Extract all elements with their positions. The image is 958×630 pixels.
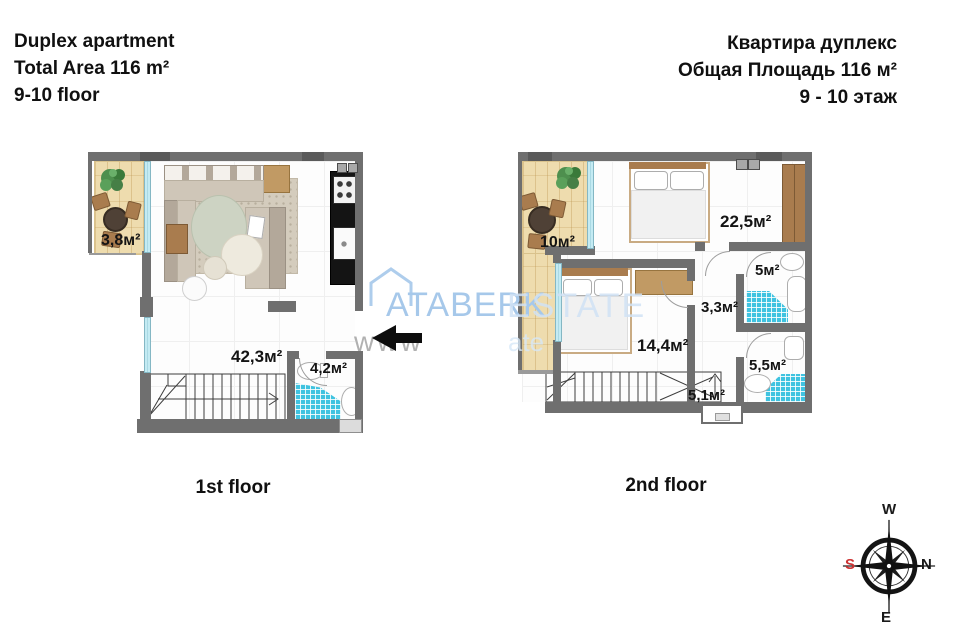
wall bbox=[736, 323, 812, 332]
compass-south-label: S bbox=[845, 556, 855, 573]
corner-table bbox=[262, 165, 290, 193]
wall-cabinet bbox=[348, 163, 358, 173]
wall bbox=[140, 152, 170, 161]
bathtub bbox=[787, 276, 807, 312]
balcony-railing bbox=[518, 370, 555, 374]
staircase bbox=[146, 372, 288, 424]
hall-area-label: 3,3м² bbox=[701, 299, 738, 316]
bed-headboard bbox=[558, 268, 628, 276]
title-ru: Квартира дуплекс Общая Площадь 116 м² 9 … bbox=[678, 30, 897, 111]
entrance-arrow-icon bbox=[372, 324, 422, 352]
bathroom-sink bbox=[780, 253, 804, 271]
wall bbox=[736, 357, 744, 402]
wall bbox=[137, 419, 363, 433]
balcony-railing bbox=[89, 253, 136, 255]
compass-north-label: N bbox=[921, 556, 932, 573]
stairs-area-label: 5,1м² bbox=[688, 387, 725, 404]
window bbox=[144, 161, 151, 253]
compass-west-label: W bbox=[882, 501, 896, 518]
title-ru-line1: Квартира дуплекс bbox=[678, 30, 897, 57]
floor2-caption: 2nd floor bbox=[518, 475, 814, 497]
wall bbox=[695, 242, 705, 251]
wall-cabinet bbox=[337, 163, 347, 173]
window bbox=[587, 161, 594, 249]
side-table bbox=[166, 224, 188, 254]
coffee-table-round bbox=[221, 234, 263, 276]
bedroom2-area-label: 14,4м² bbox=[637, 336, 688, 356]
toilet bbox=[744, 374, 771, 393]
watermark-url: ate bbox=[508, 327, 544, 358]
bathroom-area-label: 4,2м² bbox=[310, 360, 347, 377]
wall bbox=[140, 297, 153, 317]
wall bbox=[528, 152, 552, 161]
wall bbox=[553, 340, 561, 402]
door-mat bbox=[339, 419, 362, 433]
wall bbox=[355, 159, 363, 311]
duvet bbox=[631, 190, 706, 239]
title-ru-line3: 9 - 10 этаж bbox=[678, 84, 897, 111]
title-en-line1: Duplex apartment bbox=[14, 28, 174, 55]
title-en-line2: Total Area 116 m² bbox=[14, 55, 174, 82]
wardrobe bbox=[782, 164, 807, 245]
bathroom2-area-label: 5,5м² bbox=[749, 357, 786, 374]
title-en-line3: 9-10 floor bbox=[14, 82, 174, 109]
stove bbox=[333, 176, 356, 204]
bed-headboard bbox=[629, 162, 706, 169]
floor1-caption: 1st floor bbox=[88, 477, 378, 499]
wall bbox=[805, 152, 812, 413]
wall bbox=[687, 259, 695, 281]
floor1-plan: 3,8м² 42,3м² 4,2м² bbox=[88, 150, 378, 440]
wall bbox=[142, 251, 151, 297]
compass-east-label: E bbox=[881, 609, 891, 626]
balcony-area-label: 3,8м² bbox=[101, 232, 140, 250]
wall-cabinet bbox=[736, 159, 748, 170]
door-mat bbox=[715, 413, 730, 421]
bedroom1-area-label: 22,5м² bbox=[720, 212, 771, 232]
wall bbox=[287, 351, 299, 359]
title-en: Duplex apartment Total Area 116 m² 9-10 … bbox=[14, 28, 174, 109]
floor-lamp bbox=[182, 276, 207, 301]
balcony-area-label: 10м² bbox=[540, 234, 575, 252]
wall-cabinet bbox=[748, 159, 760, 170]
sofa-back-right bbox=[269, 207, 286, 289]
bathroom1-area-label: 5м² bbox=[755, 262, 779, 279]
bistro-table bbox=[103, 207, 128, 232]
wall bbox=[302, 152, 324, 161]
plant-icon bbox=[554, 163, 586, 195]
living-area-label: 42,3м² bbox=[231, 347, 282, 367]
wall bbox=[88, 159, 92, 253]
pillow bbox=[670, 171, 704, 190]
floor-plan-page: Duplex apartment Total Area 116 m² 9-10 … bbox=[0, 0, 958, 630]
bathroom-sink bbox=[784, 336, 804, 360]
watermark-brand: ESTATE bbox=[507, 287, 646, 326]
wall bbox=[287, 353, 295, 421]
wall bbox=[268, 301, 296, 312]
title-ru-line2: Общая Площадь 116 м² bbox=[678, 57, 897, 84]
pillow bbox=[634, 171, 668, 190]
entry-vestibule bbox=[701, 404, 743, 424]
wall bbox=[545, 402, 812, 413]
wall bbox=[558, 259, 695, 268]
kitchen-sink bbox=[333, 227, 356, 260]
coffee-table-small bbox=[203, 256, 227, 280]
wall bbox=[729, 242, 812, 251]
window bbox=[144, 317, 151, 373]
